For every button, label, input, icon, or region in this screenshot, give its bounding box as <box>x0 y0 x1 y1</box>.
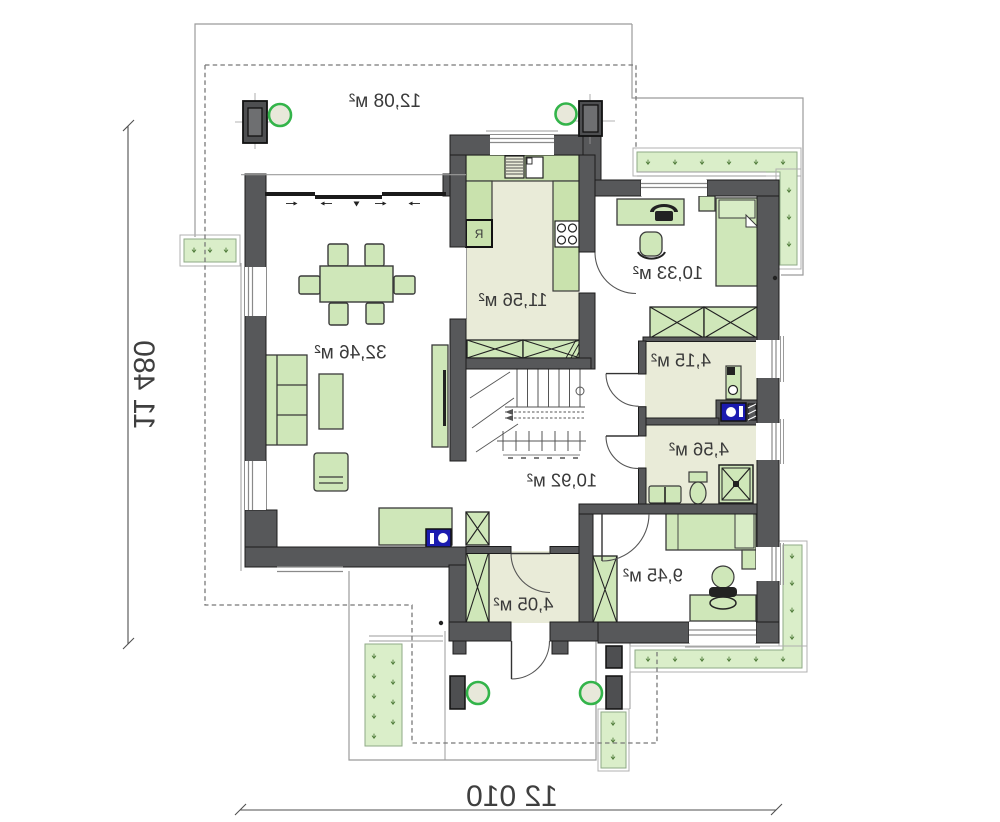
svg-text:4,05 м²: 4,05 м² <box>493 594 553 615</box>
svg-text:10,92 м²: 10,92 м² <box>527 470 597 491</box>
svg-text:9,45 м²: 9,45 м² <box>623 565 683 586</box>
svg-text:4,56 м²: 4,56 м² <box>669 439 729 460</box>
svg-text:10,33 м²: 10,33 м² <box>633 262 703 283</box>
svg-text:11 480: 11 480 <box>127 340 160 430</box>
svg-text:12 010: 12 010 <box>466 780 558 813</box>
svg-text:11,56 м²: 11,56 м² <box>479 289 548 310</box>
svg-text:4,15 м²: 4,15 м² <box>651 350 711 371</box>
svg-text:32,46 м²: 32,46 м² <box>314 343 386 364</box>
svg-text:R: R <box>474 227 483 241</box>
svg-text:12,08 м²: 12,08 м² <box>349 91 421 112</box>
